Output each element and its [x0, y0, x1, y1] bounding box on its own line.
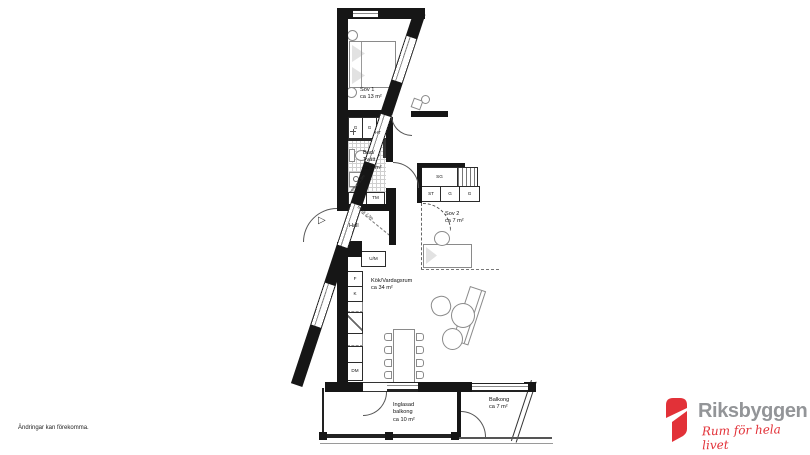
- closet-label: ST: [428, 192, 434, 197]
- sliding-wardrobe-cell: SG: [421, 167, 458, 187]
- facade-wall-segment: [291, 324, 322, 387]
- floorplan-page: Sov 1 ca 13 m² G G L HT Bad/ Tvätt ca 5 …: [0, 0, 810, 455]
- kitchen-counter: [347, 301, 363, 312]
- freezer-cell: F: [347, 271, 363, 287]
- disclaimer-text: Ändringar kan förekomma.: [18, 425, 89, 431]
- sov2-flex-wall-dashed: [421, 203, 422, 270]
- dining-chair: [384, 371, 392, 379]
- dining-chair: [416, 359, 424, 367]
- room-name: Tvätt: [363, 157, 382, 164]
- bath-door-arc: [393, 162, 419, 188]
- room-name: Balkong: [489, 397, 509, 404]
- hanging-clothes-icon: [457, 167, 478, 187]
- wardrobe-label: G: [354, 126, 358, 131]
- hall-east-wall: [389, 188, 396, 245]
- room-name: Kök/Vardagsrum: [371, 278, 412, 285]
- glazed-balcony-side: [322, 388, 324, 438]
- dining-chair: [416, 371, 424, 379]
- room-label-kok: Kök/Vardagsrum ca 34 m²: [371, 278, 412, 293]
- cleaning-closet-cell: ST: [421, 186, 441, 202]
- room-area: ca 34 m²: [371, 285, 412, 292]
- room-label-hall: Hall: [349, 223, 359, 230]
- armchair: [428, 293, 453, 318]
- nightstand: [434, 231, 450, 246]
- top-window: [353, 10, 378, 18]
- wardrobe-label: G: [368, 126, 372, 131]
- side-table: [421, 95, 430, 104]
- open-balcony-rail: [459, 437, 552, 439]
- room-label-sov1: Sov 1 ca 13 m²: [360, 87, 382, 102]
- rail-post: [451, 432, 459, 440]
- balcony-door-opening: [363, 382, 387, 392]
- brand-name: Riksbyggen: [698, 400, 807, 423]
- room-label-sov2: Sov 2 ca 7 m²: [445, 211, 464, 226]
- armchair: [442, 328, 463, 350]
- facade-window: [310, 283, 335, 329]
- nightstand: [347, 30, 358, 41]
- fridge-cell: K: [347, 286, 363, 302]
- riksbyggen-logo: Riksbyggen Rum för hela livet: [658, 393, 808, 448]
- wardrobe-label: G: [468, 192, 472, 197]
- coffee-table: [451, 303, 475, 328]
- wardrobe-label: G: [448, 192, 452, 197]
- room-area: ca 7 m²: [489, 404, 509, 411]
- sov2-closet-top-wall: [417, 163, 465, 167]
- entrance-marker-icon: ▷: [318, 215, 326, 226]
- riksbyggen-ribbon-icon: [660, 395, 694, 443]
- room-area: ca 7 m²: [445, 218, 464, 225]
- kitchen-sink-cell: [347, 346, 363, 363]
- brand-tagline: Rum för hela livet: [702, 422, 809, 453]
- bottom-wall-segment: [418, 382, 472, 392]
- room-name: Sov 1: [360, 87, 382, 94]
- dining-table: [393, 329, 415, 383]
- balcony-divider-door-arc: [461, 411, 486, 437]
- dishwasher-cell: DM: [347, 362, 363, 381]
- bottom-window-left: [387, 382, 418, 392]
- wardrobe-cell: G: [440, 186, 460, 202]
- bottom-window-right: [472, 383, 528, 392]
- sov2-flex-wall-dashed: [421, 269, 499, 270]
- dining-chair: [384, 359, 392, 367]
- dryer-label: TM: [372, 196, 379, 201]
- bottom-wall-segment: [325, 382, 363, 392]
- appliance-label: F: [354, 277, 357, 282]
- appliance-label: K: [353, 292, 356, 297]
- dining-chair: [384, 346, 392, 354]
- oven-micro-cell: U/M: [361, 251, 386, 267]
- dining-chair: [416, 346, 424, 354]
- dining-chair: [416, 333, 424, 341]
- bed-head-line: [361, 42, 362, 87]
- room-name: Bad/: [363, 150, 382, 157]
- cooktop-icon: [347, 312, 363, 334]
- shower-icon: [353, 129, 354, 135]
- room-name: Sov 2: [445, 211, 464, 218]
- towel-dryer-label: HT: [375, 131, 381, 135]
- wardrobe-label: SG: [436, 175, 443, 180]
- rail-post: [385, 432, 393, 440]
- sov1-south-wall-right: [411, 111, 448, 117]
- dining-chair: [384, 333, 392, 341]
- wardrobe-cell: G: [348, 117, 363, 139]
- wardrobe-cell: G: [459, 186, 480, 202]
- balcony-door-arc: [363, 392, 387, 416]
- sov1-door-arc: [391, 115, 412, 136]
- room-area: ca 10 m²: [393, 417, 415, 424]
- room-name: Inglasad: [393, 402, 415, 409]
- left-wall-upper: [337, 8, 348, 208]
- room-label-bad: Bad/ Tvätt ca 5 m²: [363, 150, 382, 172]
- appliance-label: DM: [351, 369, 358, 374]
- appliance-label: U/M: [369, 257, 377, 262]
- rail-post: [319, 432, 327, 440]
- room-area: ca 5 m²: [363, 165, 382, 172]
- room-label-inglasad: Inglasad balkong ca 10 m²: [393, 402, 415, 424]
- kitchen-counter: [347, 333, 363, 346]
- room-label-balkong: Balkong ca 7 m²: [489, 397, 509, 412]
- kitchen-wall-stub: [348, 241, 362, 257]
- room-area: ca 13 m²: [360, 94, 382, 101]
- room-name: balkong: [393, 409, 415, 416]
- balcony-base-line: [320, 443, 553, 444]
